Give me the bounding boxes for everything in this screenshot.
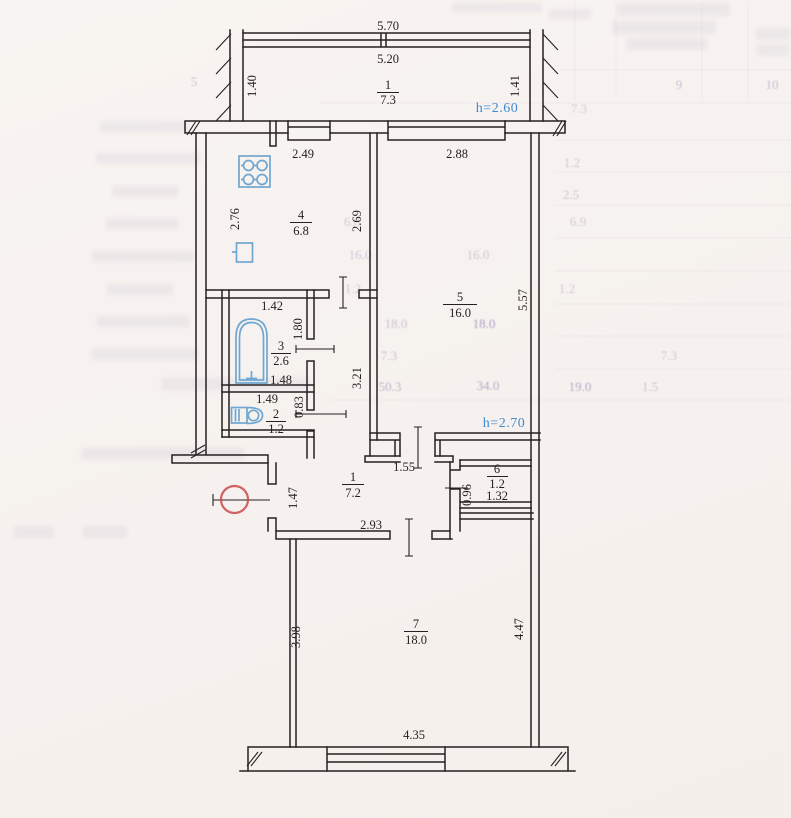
room-number: 1 bbox=[385, 78, 391, 92]
bathtub-icon bbox=[236, 319, 267, 383]
dim-living-window: 2.88 bbox=[446, 147, 468, 161]
dim-wc-right: 0.83 bbox=[292, 396, 306, 418]
ghost-number: 18.0 bbox=[385, 316, 408, 331]
room-area: 16.0 bbox=[449, 306, 471, 320]
ghost-number: 1.2 bbox=[559, 281, 575, 296]
dim-balcony-inner: 5.20 bbox=[377, 52, 399, 66]
window bbox=[327, 747, 445, 771]
ghost-number: 5 bbox=[191, 74, 198, 89]
room-label-room7: 7 18.0 bbox=[404, 617, 428, 647]
ghost-number: 10 bbox=[766, 77, 779, 92]
room-area: 1.2 bbox=[268, 422, 284, 436]
room-number: 6 bbox=[494, 462, 500, 476]
room-number: 7 bbox=[413, 617, 419, 631]
dim-kitchen-right: 2.69 bbox=[350, 210, 364, 232]
dim-balcony-outer: 5.70 bbox=[377, 19, 399, 33]
dim-closet-width: 0.96 bbox=[460, 484, 474, 506]
room-label-bathroom: 3 2.6 bbox=[271, 339, 291, 368]
dim-kitchen-left: 2.76 bbox=[228, 208, 242, 230]
room-area: 18.0 bbox=[405, 633, 427, 647]
dim-room7-bottom: 4.35 bbox=[403, 728, 425, 742]
ghost-number: 7.3 bbox=[661, 348, 677, 363]
ghost-number: 16.0 bbox=[349, 247, 372, 262]
dim-closet-bottom: 1.32 bbox=[486, 489, 508, 503]
dim-bath-bottom: 1.48 bbox=[270, 373, 292, 387]
ghost-number: 34.0 bbox=[477, 378, 500, 393]
bleedthrough-table-ghost: 1.2 2.5 6.8 6.9 16.0 16.0 1.2 1.2 18.0 1… bbox=[14, 2, 791, 538]
ghost-number: 1.2 bbox=[564, 155, 580, 170]
room-label-balcony: 1 7.3 bbox=[377, 78, 399, 107]
room-number: 4 bbox=[298, 208, 305, 222]
dim-room7-right: 4.47 bbox=[512, 618, 526, 640]
room-label-wc: 2 1.2 bbox=[266, 407, 286, 436]
room-area: 7.2 bbox=[345, 486, 361, 500]
dim-kitchen-window: 2.49 bbox=[292, 147, 314, 161]
dim-hall-entry: 1.47 bbox=[286, 487, 300, 509]
floor-plan-drawing: 1.2 2.5 6.8 6.9 16.0 16.0 1.2 1.2 18.0 1… bbox=[0, 0, 791, 818]
ghost-number: 18.0 bbox=[473, 316, 496, 331]
ghost-number: 50.3 bbox=[379, 379, 402, 394]
dim-room7-left: 3.98 bbox=[289, 626, 303, 648]
room-area: 7.3 bbox=[380, 93, 396, 107]
room-area: 2.6 bbox=[273, 354, 289, 368]
dim-corridor: 3.21 bbox=[350, 367, 364, 389]
room-label-hallway: 1 7.2 bbox=[342, 470, 364, 500]
room-number: 2 bbox=[273, 407, 279, 421]
ghost-number: 16.0 bbox=[467, 247, 490, 262]
toilet-icon bbox=[232, 408, 263, 424]
dim-bath-right: 1.80 bbox=[291, 318, 305, 340]
stove-icon bbox=[239, 156, 270, 187]
room-number: 3 bbox=[278, 339, 284, 353]
dim-hall-door: 1.55 bbox=[393, 460, 415, 474]
dim-wc-top: 1.49 bbox=[256, 392, 278, 406]
height-note-lower: h=2.70 bbox=[483, 416, 525, 431]
ghost-number: 7.3 bbox=[381, 348, 397, 363]
room-area: 6.8 bbox=[293, 224, 309, 238]
window bbox=[288, 121, 505, 140]
height-note-upper: h=2.60 bbox=[476, 101, 518, 116]
ghost-number: 2.5 bbox=[563, 187, 579, 202]
room-area: 1.2 bbox=[489, 477, 505, 491]
ghost-number: 6.9 bbox=[570, 214, 586, 229]
ghost-number: 9 bbox=[676, 77, 683, 92]
room-number: 5 bbox=[457, 290, 463, 304]
sink-icon bbox=[232, 243, 253, 262]
dim-balcony-left: 1.40 bbox=[245, 75, 259, 97]
dim-bath-top: 1.42 bbox=[261, 299, 283, 313]
ghost-number: 19.0 bbox=[569, 379, 592, 394]
dim-hall-bottom: 2.93 bbox=[360, 518, 382, 532]
ghost-number: 7.3 bbox=[571, 101, 587, 116]
dim-balcony-right: 1.41 bbox=[508, 75, 522, 97]
room-label-kitchen: 4 6.8 bbox=[290, 208, 312, 238]
scanned-floor-plan-page: 1.2 2.5 6.8 6.9 16.0 16.0 1.2 1.2 18.0 1… bbox=[0, 0, 791, 818]
room-number: 1 bbox=[350, 470, 356, 484]
ghost-number: 1.5 bbox=[642, 379, 658, 394]
dim-living-right: 5.57 bbox=[516, 289, 530, 311]
